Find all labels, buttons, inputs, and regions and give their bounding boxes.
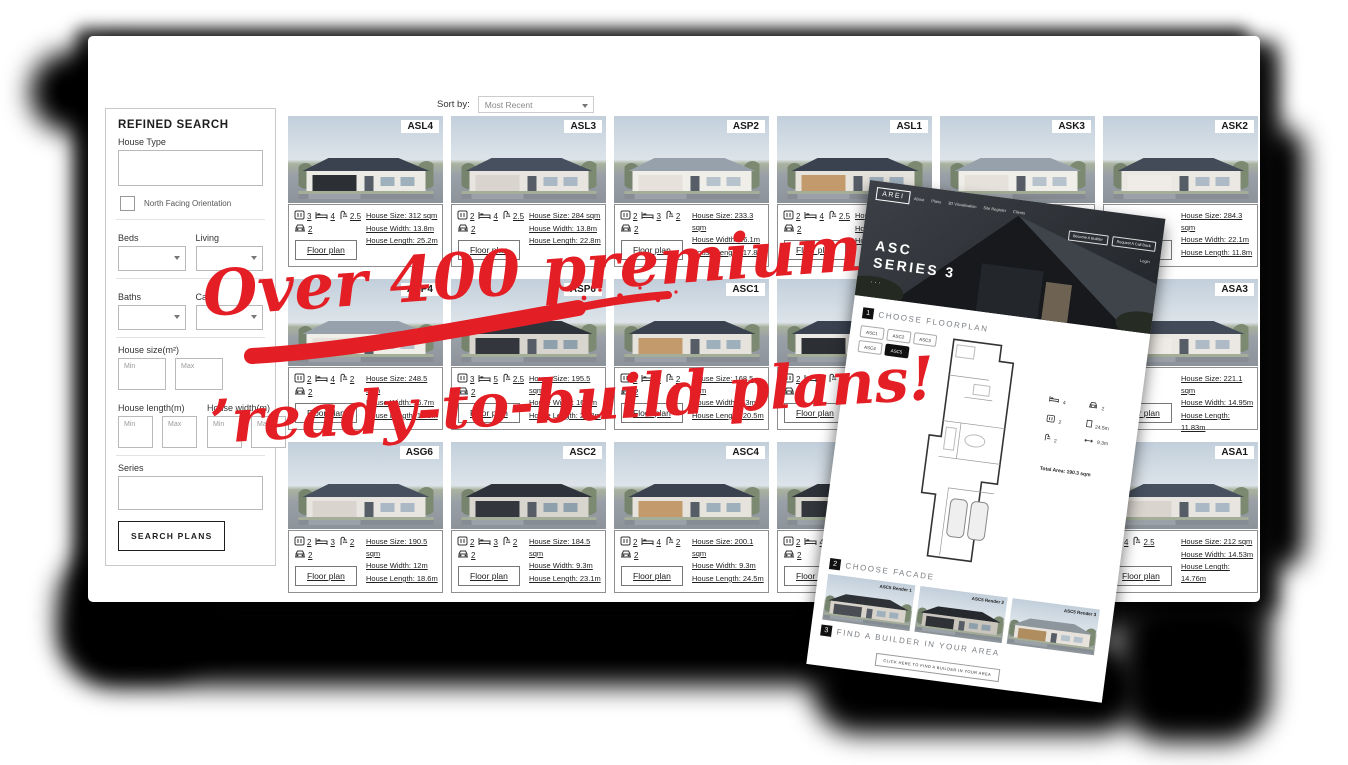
plan-info: 352.52House Size: 195.5 sqmHouse Width: … (451, 367, 606, 430)
cars-count: 2 (471, 388, 475, 397)
bath-icon (502, 538, 511, 547)
spec-row: 2 (294, 386, 364, 399)
car-icon (620, 551, 632, 560)
plan-series-title: ASC SERIES 3 • • • (870, 237, 959, 301)
house-width-min-input[interactable]: Min (207, 416, 242, 448)
chevron-down-icon (174, 315, 180, 319)
house-width: House Width: 9.3m (692, 560, 766, 572)
car-icon (457, 225, 469, 234)
plan-photo[interactable]: ASP6 (451, 279, 606, 366)
north-facing-label: North Facing Orientation (144, 199, 231, 208)
plan-stats: House Size: 168.5 sqmHouse Width: 9.3mHo… (692, 373, 766, 423)
spec-row: 242 (294, 373, 364, 386)
showers-count: 2 (796, 538, 800, 547)
car-icon (294, 225, 306, 234)
showers-count: 2 (470, 538, 474, 547)
bathrooms-count: 2.5 (513, 212, 524, 221)
plan-detail-page: AREI AboutPlans3D VisualisationSite Regi… (806, 180, 1165, 703)
plan-code-badge: ASC1 (726, 283, 765, 296)
floor-plan-button[interactable]: Floor plan (621, 240, 683, 260)
plan-stats: House Size: 200.1 sqmHouse Width: 9.3mHo… (692, 536, 766, 586)
bed-icon (641, 212, 654, 221)
plan-code-badge: ASK3 (1052, 120, 1091, 133)
house-size: House Size: 312 sqm (366, 210, 440, 222)
floor-plan-button[interactable]: Floor plan (295, 240, 357, 260)
house-length-max-input[interactable]: Max (162, 416, 197, 448)
house-size: House Size: 212 sqm (1181, 536, 1255, 548)
house-length: House Length: 22.8m (529, 235, 603, 247)
plan-card[interactable]: ASG62322House Size: 190.5 sqmHouse Width… (288, 442, 443, 593)
bathrooms-count: 2 (350, 538, 354, 547)
house-render (298, 475, 433, 525)
plan-info: 2322House Size: 233.3 sqmHouse Width: 16… (614, 204, 769, 267)
divider (116, 219, 265, 220)
beds-label: Beds (118, 233, 186, 243)
cars-count: 2 (634, 551, 638, 560)
bed-icon (804, 538, 817, 547)
facade-thumbnail[interactable]: ASC5 Render 1 (822, 574, 915, 631)
plan-photo[interactable]: ASL4 (288, 116, 443, 203)
house-type-label: House Type (118, 137, 263, 147)
shower-icon (783, 538, 794, 547)
plan-card[interactable]: ASP22322House Size: 233.3 sqmHouse Width… (614, 116, 769, 267)
facade-label: ASC5 Render 1 (879, 584, 912, 593)
facade-label: ASC5 Render 3 (1064, 608, 1097, 617)
showers-count: 2 (796, 375, 800, 384)
bed-icon (478, 375, 491, 384)
plan-photo[interactable]: ASC2 (451, 442, 606, 529)
bedrooms-count: 3 (656, 212, 660, 221)
bed-icon (1048, 398, 1062, 406)
house-size: House Size: 184.5 sqm (529, 536, 603, 559)
bedrooms-count: 4 (1124, 538, 1128, 547)
plan-stat-value: 2 (1052, 438, 1057, 444)
house-size: House Size: 284.3 sqm (1181, 210, 1255, 233)
house-width: House Width: 9.3m (692, 397, 766, 409)
house-length: House Length: 18.6m (366, 573, 440, 585)
shower-icon (620, 212, 631, 221)
plan-photo[interactable]: ASC4 (614, 442, 769, 529)
bedrooms-count: 5 (493, 375, 497, 384)
spec-row: 232 (457, 536, 527, 549)
plan-code-badge: ASC2 (563, 446, 602, 459)
floor-plan-button[interactable]: Floor plan (784, 403, 846, 423)
plan-specs: 352.52 (457, 373, 527, 399)
house-render (461, 312, 596, 362)
house-render (1113, 475, 1248, 525)
car-icon (783, 225, 795, 234)
plan-card[interactable]: ASC22322House Size: 184.5 sqmHouse Width… (451, 442, 606, 593)
car-icon (294, 388, 306, 397)
refined-search-sidebar: REFINED SEARCH House Type North Facing O… (105, 108, 276, 566)
plan-code-badge: ASP4 (401, 283, 439, 296)
spec-row: 342.5 (294, 210, 364, 223)
chevron-down-icon (174, 256, 180, 260)
house-size: House Size: 221.1 sqm (1181, 373, 1255, 396)
house-render (624, 475, 759, 525)
spec-row: 2 (294, 549, 364, 562)
plan-info: 342.52House Size: 312 sqmHouse Width: 13… (288, 204, 443, 267)
plan-code-badge: ASG6 (400, 446, 439, 459)
house-size: House Size: 200.1 sqm (692, 536, 766, 559)
floor-plan-button[interactable]: Floor plan (458, 403, 520, 423)
car-icon (783, 551, 795, 560)
bath-icon (665, 212, 674, 221)
plan-specs: 2422 (620, 536, 690, 562)
plan-card[interactable]: ASL3242.52House Size: 284 sqmHouse Width… (451, 116, 606, 267)
house-length: House Length: 24.5m (692, 573, 766, 585)
floor-plan-button[interactable]: Floor plan (458, 240, 520, 260)
plan-stats: House Size: 212 sqmHouse Width: 14.53mHo… (1181, 536, 1255, 586)
cars-count: 2 (634, 225, 638, 234)
floor-plan-button[interactable]: Floor plan (295, 403, 357, 423)
car-icon (457, 551, 469, 560)
house-length: House Length: 23.1m (529, 573, 603, 585)
plan-info: 242.52House Size: 284 sqmHouse Width: 13… (451, 204, 606, 267)
bedrooms-count: 4 (493, 212, 497, 221)
house-width: House Width: 14.95m (1181, 397, 1255, 409)
shower-icon (783, 212, 794, 221)
plan-stat: 2 (1046, 413, 1087, 429)
plan-stats: House Size: 195.5 sqmHouse Width: 16.7mH… (529, 373, 603, 423)
bedrooms-count: 4 (330, 212, 334, 221)
showers-count: 2 (470, 212, 474, 221)
bed-icon (315, 375, 328, 384)
beds-select[interactable] (118, 246, 186, 271)
house-size-max-input[interactable]: Max (175, 358, 223, 390)
plan-photo[interactable]: ASP2 (614, 116, 769, 203)
bedrooms-count: 3 (656, 375, 660, 384)
bathrooms-count: 2 (513, 538, 517, 547)
plan-card[interactable]: ASL4342.52House Size: 312 sqmHouse Width… (288, 116, 443, 267)
plan-stats: House Size: 284.3 sqmHouse Width: 22.1mH… (1181, 210, 1255, 260)
house-render (624, 149, 759, 199)
car-icon (783, 388, 795, 397)
section-number: 2 (829, 558, 841, 570)
plan-stat: 24.5m (1085, 418, 1128, 434)
floorplan-drawing (893, 331, 1042, 575)
house-render (624, 312, 759, 362)
floor-plan-button[interactable]: Floor plan (621, 566, 683, 586)
plan-info: 42.5House Size: 212 sqmHouse Width: 14.5… (1103, 530, 1258, 593)
plan-specs: 1322 (620, 373, 690, 399)
divider (116, 278, 265, 279)
bath-icon (665, 538, 674, 547)
plan-info: 1322House Size: 168.5 sqmHouse Width: 9.… (614, 367, 769, 430)
spec-row: 2 (620, 549, 690, 562)
bed-icon (478, 538, 491, 547)
bath-icon (1132, 538, 1141, 547)
car-icon (620, 388, 632, 397)
house-length: House Length: 25.2m (366, 235, 440, 247)
bathrooms-count: 2 (350, 375, 354, 384)
sidebar-title: REFINED SEARCH (118, 119, 263, 131)
shower-icon (294, 538, 305, 547)
floor-plan-button[interactable]: Floor plan (621, 403, 683, 423)
plan-info: 2422House Size: 200.1 sqmHouse Width: 9.… (614, 530, 769, 593)
plan-stats: House Size: 233.3 sqmHouse Width: 16.1mH… (692, 210, 766, 260)
chevron-down-icon (582, 104, 588, 108)
house-length: House Length: 14.76m (1181, 561, 1255, 584)
bathrooms-count: 2.5 (839, 212, 850, 221)
showers-count: 2 (307, 375, 311, 384)
plan-info: 2322House Size: 184.5 sqmHouse Width: 9.… (451, 530, 606, 593)
plan-code-badge: ASA3 (1215, 283, 1254, 296)
plan-code-badge: ASL4 (401, 120, 439, 133)
house-size: House Size: 248.5 sqm (366, 373, 440, 396)
sort-select[interactable]: Most Recent (478, 96, 594, 113)
cars-count: 2 (797, 388, 801, 397)
showers-count: 2 (307, 538, 311, 547)
house-width: House Width: 13.8m (366, 223, 440, 235)
bath-icon (665, 375, 674, 384)
house-render (1008, 610, 1097, 653)
plan-code-badge: ASP2 (727, 120, 765, 133)
floorplan-option-chip[interactable]: ASC1 (859, 325, 884, 340)
floorplan-option-chip[interactable]: ASC4 (857, 340, 882, 355)
bathrooms-count: 2.5 (350, 212, 361, 221)
showers-count: 3 (470, 375, 474, 384)
living-label: Living (196, 233, 264, 243)
plan-specs: 2422 (294, 373, 364, 399)
house-render (823, 586, 912, 629)
house-render (461, 149, 596, 199)
facade-thumbnail[interactable]: ASC5 Render 2 (914, 586, 1007, 643)
plan-photo[interactable]: ASK3 (940, 116, 1095, 203)
plan-stats: House Size: 190.5 sqmHouse Width: 12mHou… (366, 536, 440, 586)
house-render (1113, 149, 1248, 199)
cars-count: 2 (471, 225, 475, 234)
house-width-label: House width(m) (207, 403, 286, 413)
plan-photo[interactable]: ASP4 (288, 279, 443, 366)
bathrooms-count: 2 (676, 538, 680, 547)
bed-icon (804, 212, 817, 221)
shower-icon (457, 375, 468, 384)
house-size-label: House size(m²) (118, 345, 263, 355)
plan-photo[interactable]: ASL3 (451, 116, 606, 203)
house-width: House Width: 14.53m (1181, 549, 1255, 561)
shower-icon (457, 538, 468, 547)
plan-stat: 2 (1088, 399, 1131, 415)
house-length: House Length: 17.8m (692, 247, 766, 259)
house-width: House Width: 16.1m (692, 234, 766, 246)
car-icon (1088, 404, 1101, 412)
spec-row: 2 (620, 223, 690, 236)
bath-icon (339, 375, 348, 384)
house-size: House Size: 190.5 sqm (366, 536, 440, 559)
plan-stats: House Size: 312 sqmHouse Width: 13.8mHou… (366, 210, 440, 248)
plan-specs: 242.52 (457, 210, 527, 236)
plan-stats: House Size: 248.5 sqmHouse Width: 16.7mH… (366, 373, 440, 423)
spec-row: 132 (620, 373, 690, 386)
bed-icon (641, 375, 654, 384)
shadow-blob (1120, 602, 1270, 742)
plan-card[interactable]: ASC11322House Size: 168.5 sqmHouse Width… (614, 279, 769, 430)
north-facing-checkbox[interactable] (120, 196, 135, 211)
house-length: House Length: 20.8m (529, 410, 603, 422)
showers-count: 2 (633, 538, 637, 547)
house-width-max-input[interactable]: Max (251, 416, 286, 448)
bathrooms-count: 2 (676, 375, 680, 384)
shower-icon (783, 375, 794, 384)
house-length-label: House length(m) (118, 403, 197, 413)
plan-code-badge: ASL1 (890, 120, 928, 133)
cars-count: 2 (797, 225, 801, 234)
bath-icon (502, 212, 511, 221)
section-number: 3 (820, 624, 832, 636)
cars-label: Cars (196, 292, 264, 302)
bathrooms-count: 2 (676, 212, 680, 221)
bath-icon (828, 212, 837, 221)
house-width: House Width: 13.8m (529, 223, 603, 235)
plan-stat-value: 24.5m (1093, 424, 1109, 432)
house-render (950, 149, 1085, 199)
house-width: House Width: 12m (366, 560, 440, 572)
plan-code-badge: ASA1 (1215, 446, 1254, 459)
spec-row: 242.5 (783, 210, 853, 223)
floor-plan-button[interactable]: Floor plan (784, 240, 846, 260)
series-label: Series (118, 463, 263, 473)
car-icon (457, 388, 469, 397)
plan-info: 2322House Size: 190.5 sqmHouse Width: 12… (288, 530, 443, 593)
plan-stat-value: 2 (1100, 406, 1105, 412)
spec-row: 242.5 (457, 210, 527, 223)
bath-icon (339, 538, 348, 547)
spec-row: 2 (783, 223, 853, 236)
plan-code-badge: ASC4 (726, 446, 765, 459)
bath-icon (502, 375, 511, 384)
bed-icon (478, 212, 491, 221)
house-size: House Size: 195.5 sqm (529, 373, 603, 396)
floorplan-option-chip[interactable]: ASC5 (884, 343, 909, 358)
house-size: House Size: 168.5 sqm (692, 373, 766, 396)
spec-row: 242 (620, 536, 690, 549)
bed-icon (641, 538, 654, 547)
house-length: House Length: 17.8m (366, 410, 440, 422)
cars-select[interactable] (196, 305, 264, 330)
plan-stat: 2 (1043, 432, 1084, 448)
plan-specs: 2322 (457, 536, 527, 562)
house-length: House Length: 11.8m (1181, 247, 1255, 259)
total-area-value: 190.3 sqm (1066, 469, 1091, 478)
shower-icon (620, 538, 631, 547)
living-select[interactable] (196, 246, 264, 271)
plan-photo[interactable]: ASK2 (1103, 116, 1258, 203)
bed-icon (315, 212, 328, 221)
divider (116, 337, 265, 338)
house-width: House Width: 16.7m (529, 397, 603, 409)
total-area-label: Total Area: (1039, 466, 1065, 475)
bath-icon (828, 375, 837, 384)
cars-count: 2 (634, 388, 638, 397)
house-width: House Width: 16.7m (366, 397, 440, 409)
house-size-min-input[interactable]: Min (118, 358, 166, 390)
cars-count: 2 (308, 225, 312, 234)
bedrooms-count: 4 (819, 212, 823, 221)
bedrooms-count: 3 (330, 538, 334, 547)
car-icon (620, 225, 632, 234)
series-input[interactable] (118, 476, 263, 510)
sort-by-label: Sort by: (437, 99, 470, 110)
house-length: House Length: 11.83m (1181, 410, 1255, 433)
showers-count: 1 (633, 375, 637, 384)
plan-stats: House Size: 221.1 sqmHouse Width: 14.95m… (1181, 373, 1255, 434)
bedrooms-count: 4 (656, 538, 660, 547)
bedrooms-count: 4 (330, 375, 334, 384)
facade-thumbnail[interactable]: ASC5 Render 3 (1007, 598, 1100, 655)
search-plans-button[interactable]: SEARCH PLANS (118, 521, 225, 551)
floorplan-stats: 4 2 2 24.5m 2 9.3m (1043, 394, 1131, 453)
showers-count: 2 (633, 212, 637, 221)
house-render (298, 149, 433, 199)
plan-photo[interactable]: ASG6 (288, 442, 443, 529)
plan-specs: 342.52 (294, 210, 364, 236)
spec-row: 352.5 (457, 373, 527, 386)
plan-code-badge: ASP6 (564, 283, 602, 296)
bathrooms-count: 2.5 (513, 375, 524, 384)
divider (116, 455, 265, 456)
plan-card[interactable]: ASC42422House Size: 200.1 sqmHouse Width… (614, 442, 769, 593)
house-length-min-input[interactable]: Min (118, 416, 153, 448)
chevron-down-icon (251, 315, 257, 319)
plan-specs: 2322 (294, 536, 364, 562)
house-width: House Width: 9.3m (529, 560, 603, 572)
plan-stat-value: 9.3m (1095, 440, 1108, 448)
house-size: House Size: 284 sqm (529, 210, 603, 222)
plan-stat: 9.3m (1083, 437, 1126, 453)
plan-photo[interactable]: ASC1 (614, 279, 769, 366)
showers-count: 3 (307, 212, 311, 221)
cars-count: 2 (308, 551, 312, 560)
plan-card[interactable]: ASP42422House Size: 248.5 sqmHouse Width… (288, 279, 443, 430)
house-render (916, 598, 1005, 641)
spec-row: 2 (294, 223, 364, 236)
floor-plan-button[interactable]: Floor plan (295, 566, 357, 586)
house-length: House Length: 20.5m (692, 410, 766, 422)
bedrooms-count: 3 (493, 538, 497, 547)
plan-info: 2422House Size: 248.5 sqmHouse Width: 16… (288, 367, 443, 430)
baths-select[interactable] (118, 305, 186, 330)
house-width: House Width: 22.1m (1181, 234, 1255, 246)
section-number: 1 (862, 307, 874, 319)
house-type-input[interactable] (118, 150, 263, 186)
plan-card[interactable]: ASP6352.52House Size: 195.5 sqmHouse Wid… (451, 279, 606, 430)
plan-stat: 4 (1048, 394, 1089, 410)
chevron-down-icon (251, 256, 257, 260)
cars-count: 2 (308, 388, 312, 397)
spec-row: 2 (457, 223, 527, 236)
plan-code-badge: ASK2 (1215, 120, 1254, 133)
plan-code-badge: ASL3 (564, 120, 602, 133)
baths-label: Baths (118, 292, 186, 302)
bed-icon (315, 538, 328, 547)
shower-icon (457, 212, 468, 221)
bedrooms-count: 4 (819, 375, 823, 384)
house-render (298, 312, 433, 362)
plan-specs: 242.52 (783, 210, 853, 236)
spec-row: 2 (620, 386, 690, 399)
floor-plan-button[interactable]: Floor plan (458, 566, 520, 586)
facade-label: ASC5 Render 2 (971, 596, 1004, 605)
spec-row: 232 (620, 210, 690, 223)
floorplan-option-chip[interactable]: ASC2 (886, 329, 911, 344)
bathrooms-count: 2.5 (1143, 538, 1154, 547)
cars-count: 2 (471, 551, 475, 560)
width-icon (1083, 438, 1096, 446)
shower-icon (294, 375, 305, 384)
plan-specs: 2322 (620, 210, 690, 236)
house-render (461, 475, 596, 525)
